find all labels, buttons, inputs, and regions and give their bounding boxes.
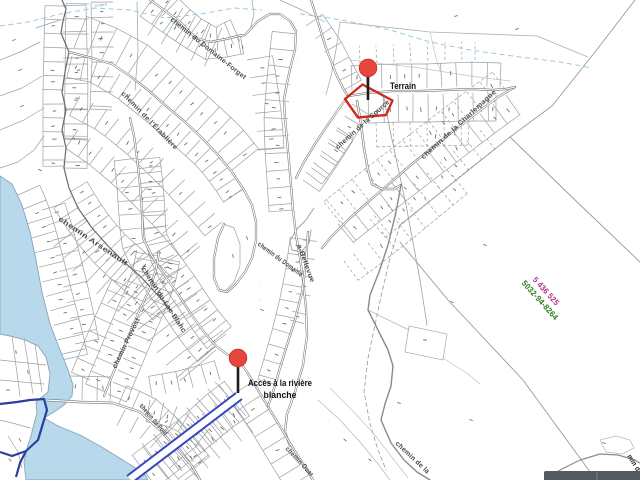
svg-text:Accès à la rivière: Accès à la rivière <box>248 377 312 388</box>
svg-text:blanche: blanche <box>264 389 297 400</box>
svg-text:Terrain: Terrain <box>390 80 416 91</box>
